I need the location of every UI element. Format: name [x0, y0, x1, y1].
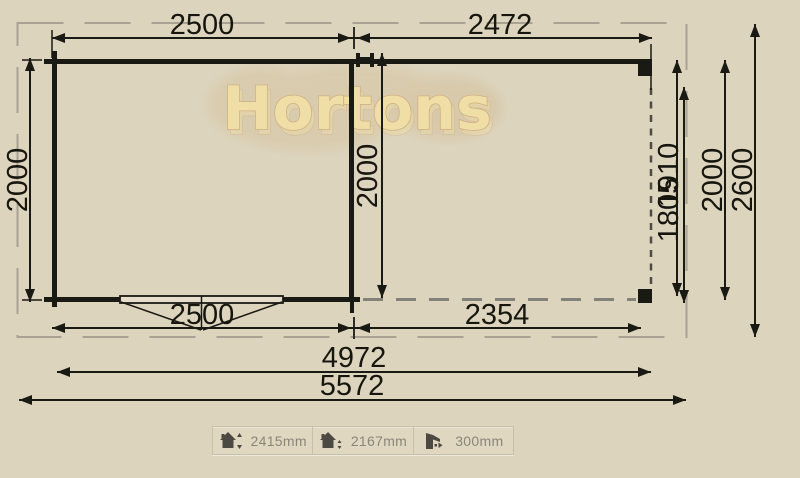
dim-label-cabin-width: 2500 [170, 9, 235, 41]
dim-total-outer: 5572 [19, 370, 686, 405]
dim-label-total-outer: 5572 [320, 370, 385, 402]
front-wall [44, 59, 652, 64]
dim-right-overall: 2600 [727, 24, 760, 337]
legend-item-eaves-height: 2167mm [312, 427, 412, 454]
wall-joint-marker [356, 53, 374, 67]
dim-label-overall-depth: 2600 [727, 148, 759, 213]
dim-label-right-depth: 2000 [697, 148, 729, 213]
dim-right-depth: 2000 [697, 60, 730, 300]
watermark-text: Hortons [222, 74, 491, 144]
floor-plan-page: Hortons Hortons [0, 0, 800, 478]
legend-value: 300mm [455, 433, 503, 449]
dim-label-canopy-inner-depth: 1805 [653, 178, 685, 243]
legend-value: 2415mm [251, 433, 307, 449]
canopy-post-front [638, 62, 652, 76]
legend-item-ridge-height: 2415mm [213, 427, 312, 454]
left-wall [52, 51, 57, 307]
ridge-height-icon [219, 431, 243, 451]
floor-plan-drawing: Hortons Hortons [0, 0, 800, 478]
dim-label-canopy-width-top: 2472 [468, 9, 533, 41]
brand-watermark: Hortons Hortons [208, 65, 502, 150]
dim-label-mid-depth: 2000 [352, 144, 384, 209]
dim-canopy-inner: 1805 [653, 87, 689, 303]
dim-label-left-depth: 2000 [2, 148, 34, 213]
spec-legend-bar: 2415mm 2167mm [212, 426, 514, 455]
partition-wall-lower-tick [350, 300, 354, 313]
legend-item-roof-overhang: 300mm [413, 427, 513, 454]
dim-label-door-wall-width: 2500 [170, 299, 235, 331]
canopy-post-back [638, 289, 652, 303]
legend-value: 2167mm [351, 433, 407, 449]
dim-left-depth: 2000 [2, 58, 42, 302]
roof-overhang-icon [423, 431, 447, 451]
back-wall-left-segment [44, 297, 120, 302]
back-wall-right-segment [283, 297, 360, 302]
eaves-height-icon [319, 431, 343, 451]
dim-label-canopy-width-bottom: 2354 [465, 299, 530, 331]
